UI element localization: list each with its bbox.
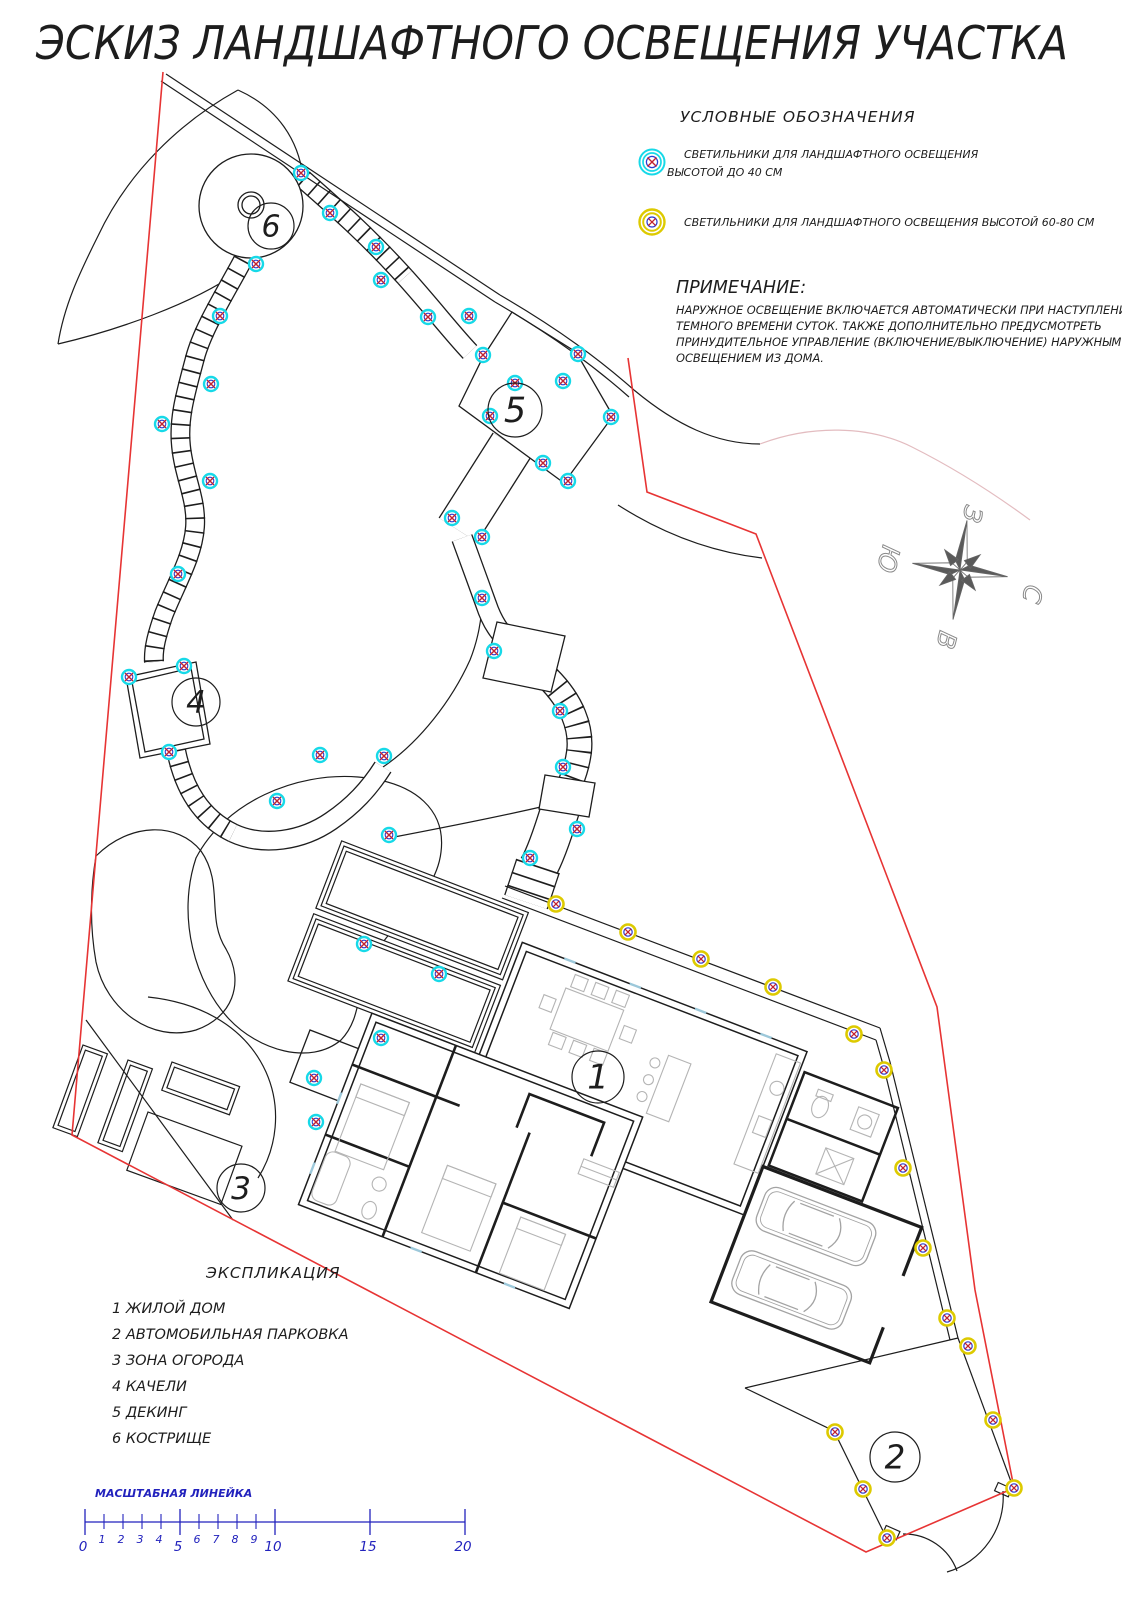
path-platform xyxy=(539,775,595,817)
lamp-low-icon xyxy=(249,257,263,271)
lamp-low-icon xyxy=(571,347,585,361)
garden-paths xyxy=(154,179,580,902)
note-line: ПРИНУДИТЕЛЬНОЕ УПРАВЛЕНИЕ (ВКЛЮЧЕНИЕ/ВЫК… xyxy=(676,335,1122,349)
lamp-low-icon xyxy=(162,745,176,759)
compass-east-label: В xyxy=(930,628,962,652)
lamp-low-icon xyxy=(570,822,584,836)
feature-number: 5 xyxy=(504,390,526,431)
lamp-low-icon xyxy=(307,1071,321,1085)
ruler-minor-label: 8 xyxy=(232,1533,239,1546)
explication-item-3: 3 ЗОНА ОГОРОДА xyxy=(112,1353,244,1369)
ruler-major-label: 15 xyxy=(359,1539,376,1555)
gate-leaf xyxy=(947,1491,1003,1572)
lamp-low-icon xyxy=(556,374,570,388)
lamp-low-icon xyxy=(377,749,391,763)
lamp-low-icon xyxy=(309,1115,323,1129)
lamp-high-icon xyxy=(880,1531,895,1546)
lamp-low-icon xyxy=(421,310,435,324)
lamp-low-icon xyxy=(445,511,459,525)
lamp-low-icon xyxy=(476,348,490,362)
lamp-low-icon xyxy=(203,474,217,488)
lamp-low-icon xyxy=(155,417,169,431)
ruler-minor-label: 9 xyxy=(251,1533,258,1546)
lamp-low-icon xyxy=(556,760,570,774)
lamp-low-icon xyxy=(369,240,383,254)
feature-number: 2 xyxy=(885,1438,906,1476)
lamp-high-icon xyxy=(694,952,709,967)
lamp-low-icon xyxy=(604,410,618,424)
lamp-low-icon xyxy=(213,309,227,323)
compass-north-label: С xyxy=(1016,582,1048,606)
ruler-major-label: 10 xyxy=(264,1539,281,1555)
legend-item-1-line-1: СВЕТИЛЬНИКИ ДЛЯ ЛАНДШАФТНОГО ОСВЕЩЕНИЯ xyxy=(684,148,979,161)
note-line: НАРУЖНОЕ ОСВЕЩЕНИЕ ВКЛЮЧАЕТСЯ АВТОМАТИЧЕ… xyxy=(676,303,1122,317)
explication-item-2: 2 АВТОМОБИЛЬНАЯ ПАРКОВКА xyxy=(112,1327,348,1343)
lamp-low-icon xyxy=(561,474,575,488)
lamp-low-icon xyxy=(536,456,550,470)
lamp-low-icon xyxy=(357,937,371,951)
lamp-high-icon xyxy=(856,1482,871,1497)
explication-item-1: 1 ЖИЛОЙ ДОМ xyxy=(112,1299,226,1317)
explication-item-4: 4 КАЧЕЛИ xyxy=(112,1379,187,1395)
lamp-low-icon xyxy=(294,166,308,180)
landscape-lighting-plan-sheet: 123456 З Ю В С ЭСКИЗ ЛАНДШАФТНОГО ОСВЕЩЕ… xyxy=(0,0,1122,1600)
ruler-heading: МАСШТАБНАЯ ЛИНЕЙКА xyxy=(95,1487,252,1500)
lamp-high-icon xyxy=(766,980,781,995)
lamp-low-icon xyxy=(432,967,446,981)
lamp-low-icon xyxy=(475,530,489,544)
lamp-high-icon xyxy=(621,925,636,940)
lamp-low-icon xyxy=(171,567,185,581)
legend-item-2-line-1: СВЕТИЛЬНИКИ ДЛЯ ЛАНДШАФТНОГО ОСВЕЩЕНИЯ В… xyxy=(684,216,1095,229)
garden-bed xyxy=(162,1062,240,1115)
lamp-low-icon xyxy=(374,1031,388,1045)
lamp-high-icon xyxy=(847,1027,862,1042)
feature-number: 3 xyxy=(231,1171,251,1207)
note-heading: ПРИМЕЧАНИЕ: xyxy=(676,278,806,298)
feature-circle-3: 3 xyxy=(217,1164,265,1212)
gate-leaf xyxy=(903,1534,957,1571)
explication-block: ЭКСПЛИКАЦИЯ 1 ЖИЛОЙ ДОМ2 АВТОМОБИЛЬНАЯ П… xyxy=(112,1264,348,1447)
lamp-high-icon xyxy=(877,1063,892,1078)
feature-number: 4 xyxy=(186,685,206,721)
lamp-high-icon xyxy=(549,897,564,912)
lamp-low-icon xyxy=(177,659,191,673)
ruler-minor-label: 6 xyxy=(194,1533,201,1546)
compass-rose: З Ю В С xyxy=(871,503,1049,652)
legend-item-1-line-2: ВЫСОТОЙ ДО 40 СМ xyxy=(667,166,783,179)
explication-item-6: 6 КОСТРИЩЕ xyxy=(112,1431,212,1447)
ruler-major-label: 0 xyxy=(79,1539,88,1555)
legend-heading: УСЛОВНЫЕ ОБОЗНАЧЕНИЯ xyxy=(680,108,916,126)
explication-item-5: 5 ДЕКИНГ xyxy=(112,1405,188,1421)
lamp-low-icon xyxy=(313,748,327,762)
compost-area xyxy=(127,1112,242,1204)
lamp-high-icon xyxy=(1007,1481,1022,1496)
lamp-low-icon xyxy=(382,828,396,842)
scale-ruler: МАСШТАБНАЯ ЛИНЕЙКА 0510152012346789 xyxy=(79,1487,472,1555)
legend: УСЛОВНЫЕ ОБОЗНАЧЕНИЯ СВЕТИЛЬНИКИ ДЛЯ ЛАН… xyxy=(640,108,1095,235)
lamp-low-icon xyxy=(487,644,501,658)
ruler-minor-label: 1 xyxy=(99,1533,106,1546)
lamp-low-icon xyxy=(270,794,284,808)
note-block: ПРИМЕЧАНИЕ: НАРУЖНОЕ ОСВЕЩЕНИЕ ВКЛЮЧАЕТС… xyxy=(676,278,1122,365)
compass-west-label: З xyxy=(956,503,988,526)
fences xyxy=(161,74,1013,1572)
lamp-low-icon xyxy=(374,273,388,287)
lamp-low-icon xyxy=(122,670,136,684)
site-plan-drawing: 123456 З Ю В С ЭСКИЗ ЛАНДШАФТНОГО ОСВЕЩЕ… xyxy=(0,0,1122,1600)
feature-circle-2: 2 xyxy=(870,1432,920,1482)
lamp-high-icon xyxy=(916,1241,931,1256)
ruler-major-label: 5 xyxy=(174,1539,183,1555)
note-line: ОСВЕЩЕНИЕМ ИЗ ДОМА. xyxy=(676,351,824,365)
lamp-low-icon xyxy=(475,591,489,605)
lamp-low-icon xyxy=(553,704,567,718)
feature-number: 6 xyxy=(261,209,280,244)
note-line: ТЕМНОГО ВРЕМЕНИ СУТОК. ТАКЖЕ ДОПОЛНИТЕЛЬ… xyxy=(676,319,1102,333)
lamp-low-icon xyxy=(204,377,218,391)
lamp-high-icon xyxy=(640,210,665,235)
explication-heading: ЭКСПЛИКАЦИЯ xyxy=(205,1264,341,1282)
compass-south-label: Ю xyxy=(871,542,906,575)
lamp-low-icon xyxy=(640,150,665,175)
page-title: ЭСКИЗ ЛАНДШАФТНОГО ОСВЕЩЕНИЯ УЧАСТКА xyxy=(35,16,1068,70)
ruler-minor-label: 4 xyxy=(156,1533,163,1546)
ruler-minor-label: 3 xyxy=(137,1533,144,1546)
ruler-major-label: 20 xyxy=(454,1539,471,1555)
lamp-low-icon xyxy=(523,851,537,865)
lamp-low-icon xyxy=(323,206,337,220)
lamp-high-icon xyxy=(828,1425,843,1440)
lamp-high-icon xyxy=(940,1311,955,1326)
garden-bed xyxy=(53,1045,108,1137)
lamp-low-icon xyxy=(462,309,476,323)
ruler-minor-label: 2 xyxy=(118,1533,125,1546)
garden-zone xyxy=(53,1020,242,1220)
lamp-high-icon xyxy=(986,1413,1001,1428)
ruler-minor-label: 7 xyxy=(213,1533,220,1546)
lamp-high-icon xyxy=(896,1161,911,1176)
feature-number: 1 xyxy=(587,1058,609,1097)
lamp-high-icon xyxy=(961,1339,976,1354)
